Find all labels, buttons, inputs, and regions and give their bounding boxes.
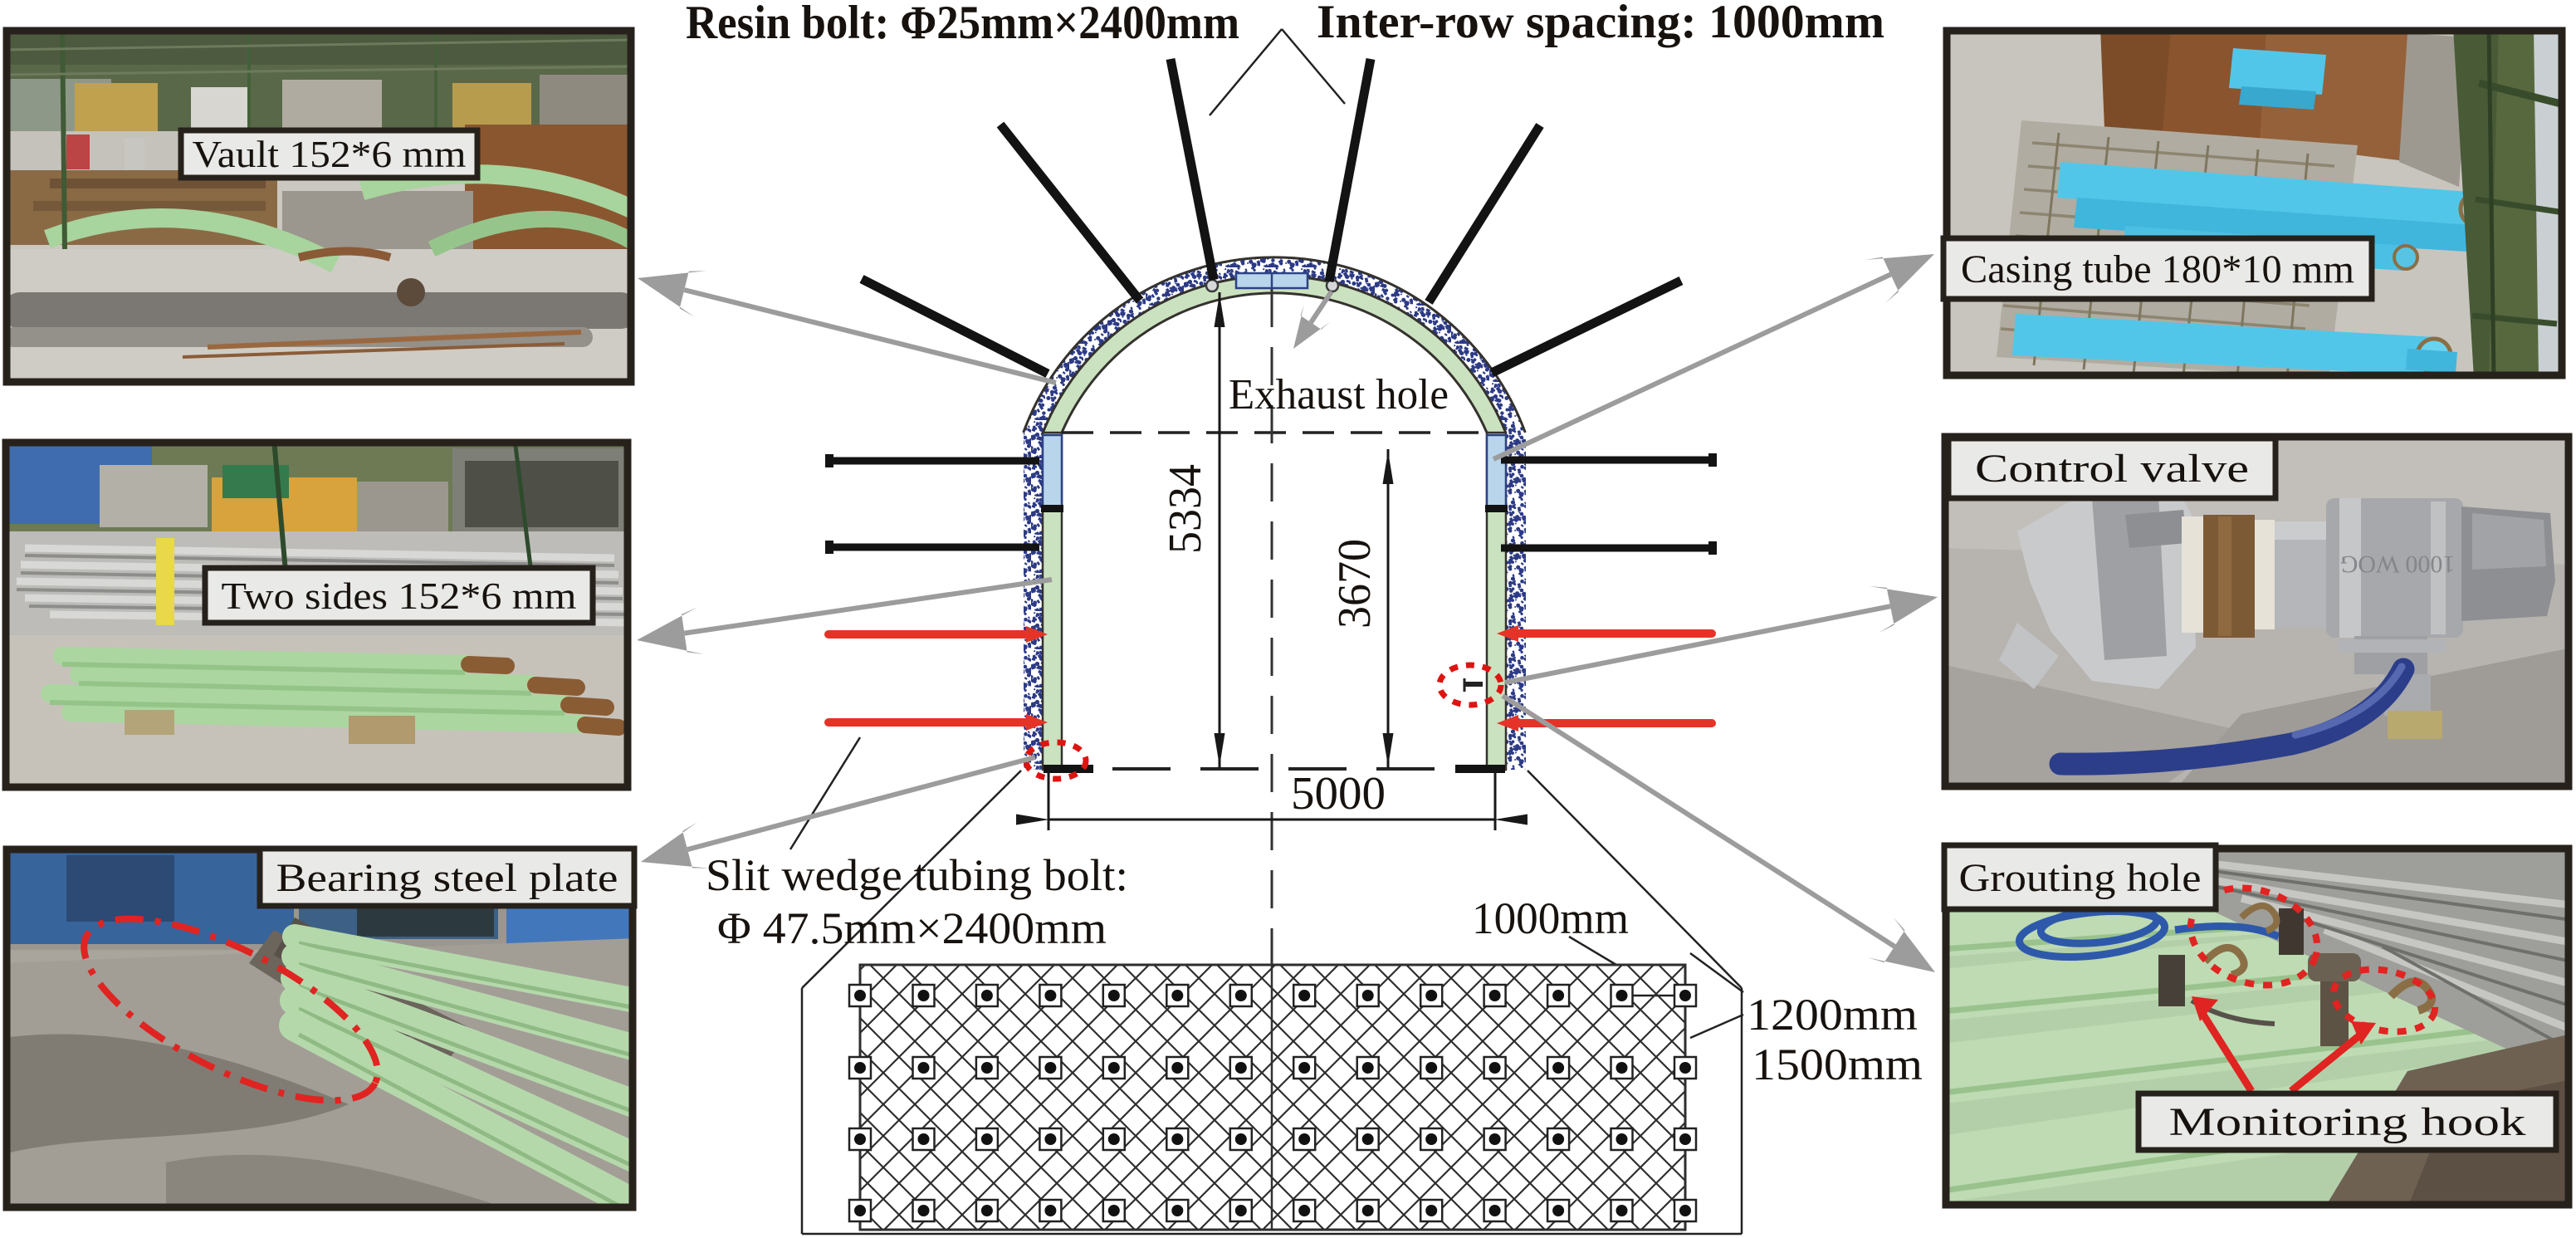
svg-text:3670: 3670 xyxy=(1329,539,1381,629)
svg-text:Φ 47.5mm×2400mm: Φ 47.5mm×2400mm xyxy=(717,903,1107,953)
svg-text:1000 WOG: 1000 WOG xyxy=(2340,550,2456,578)
svg-text:5334: 5334 xyxy=(1160,464,1211,554)
svg-text:Resin bolt: Φ25mm×2400mm: Resin bolt: Φ25mm×2400mm xyxy=(686,0,1239,49)
svg-text:Exhaust hole: Exhaust hole xyxy=(1229,371,1449,418)
svg-text:Casing tube 180*10 mm: Casing tube 180*10 mm xyxy=(1961,247,2354,291)
svg-text:1500mm: 1500mm xyxy=(1752,1040,1923,1089)
svg-text:Grouting hole: Grouting hole xyxy=(1959,856,2202,900)
svg-text:Vault 152*6 mm: Vault 152*6 mm xyxy=(193,133,467,175)
svg-text:1000mm: 1000mm xyxy=(1472,893,1629,943)
svg-text:Control valve: Control valve xyxy=(1975,447,2249,491)
svg-text:Slit wedge tubing bolt:: Slit wedge tubing bolt: xyxy=(706,850,1128,900)
svg-text:5000: 5000 xyxy=(1291,768,1386,820)
svg-text:Bearing steel plate: Bearing steel plate xyxy=(276,856,618,900)
svg-text:Monitoring hook: Monitoring hook xyxy=(2169,1100,2526,1144)
svg-text:Inter-row spacing: 1000mm: Inter-row spacing: 1000mm xyxy=(1317,0,1884,48)
svg-text:1200mm: 1200mm xyxy=(1747,990,1918,1040)
svg-text:Two sides 152*6 mm: Two sides 152*6 mm xyxy=(222,575,577,617)
